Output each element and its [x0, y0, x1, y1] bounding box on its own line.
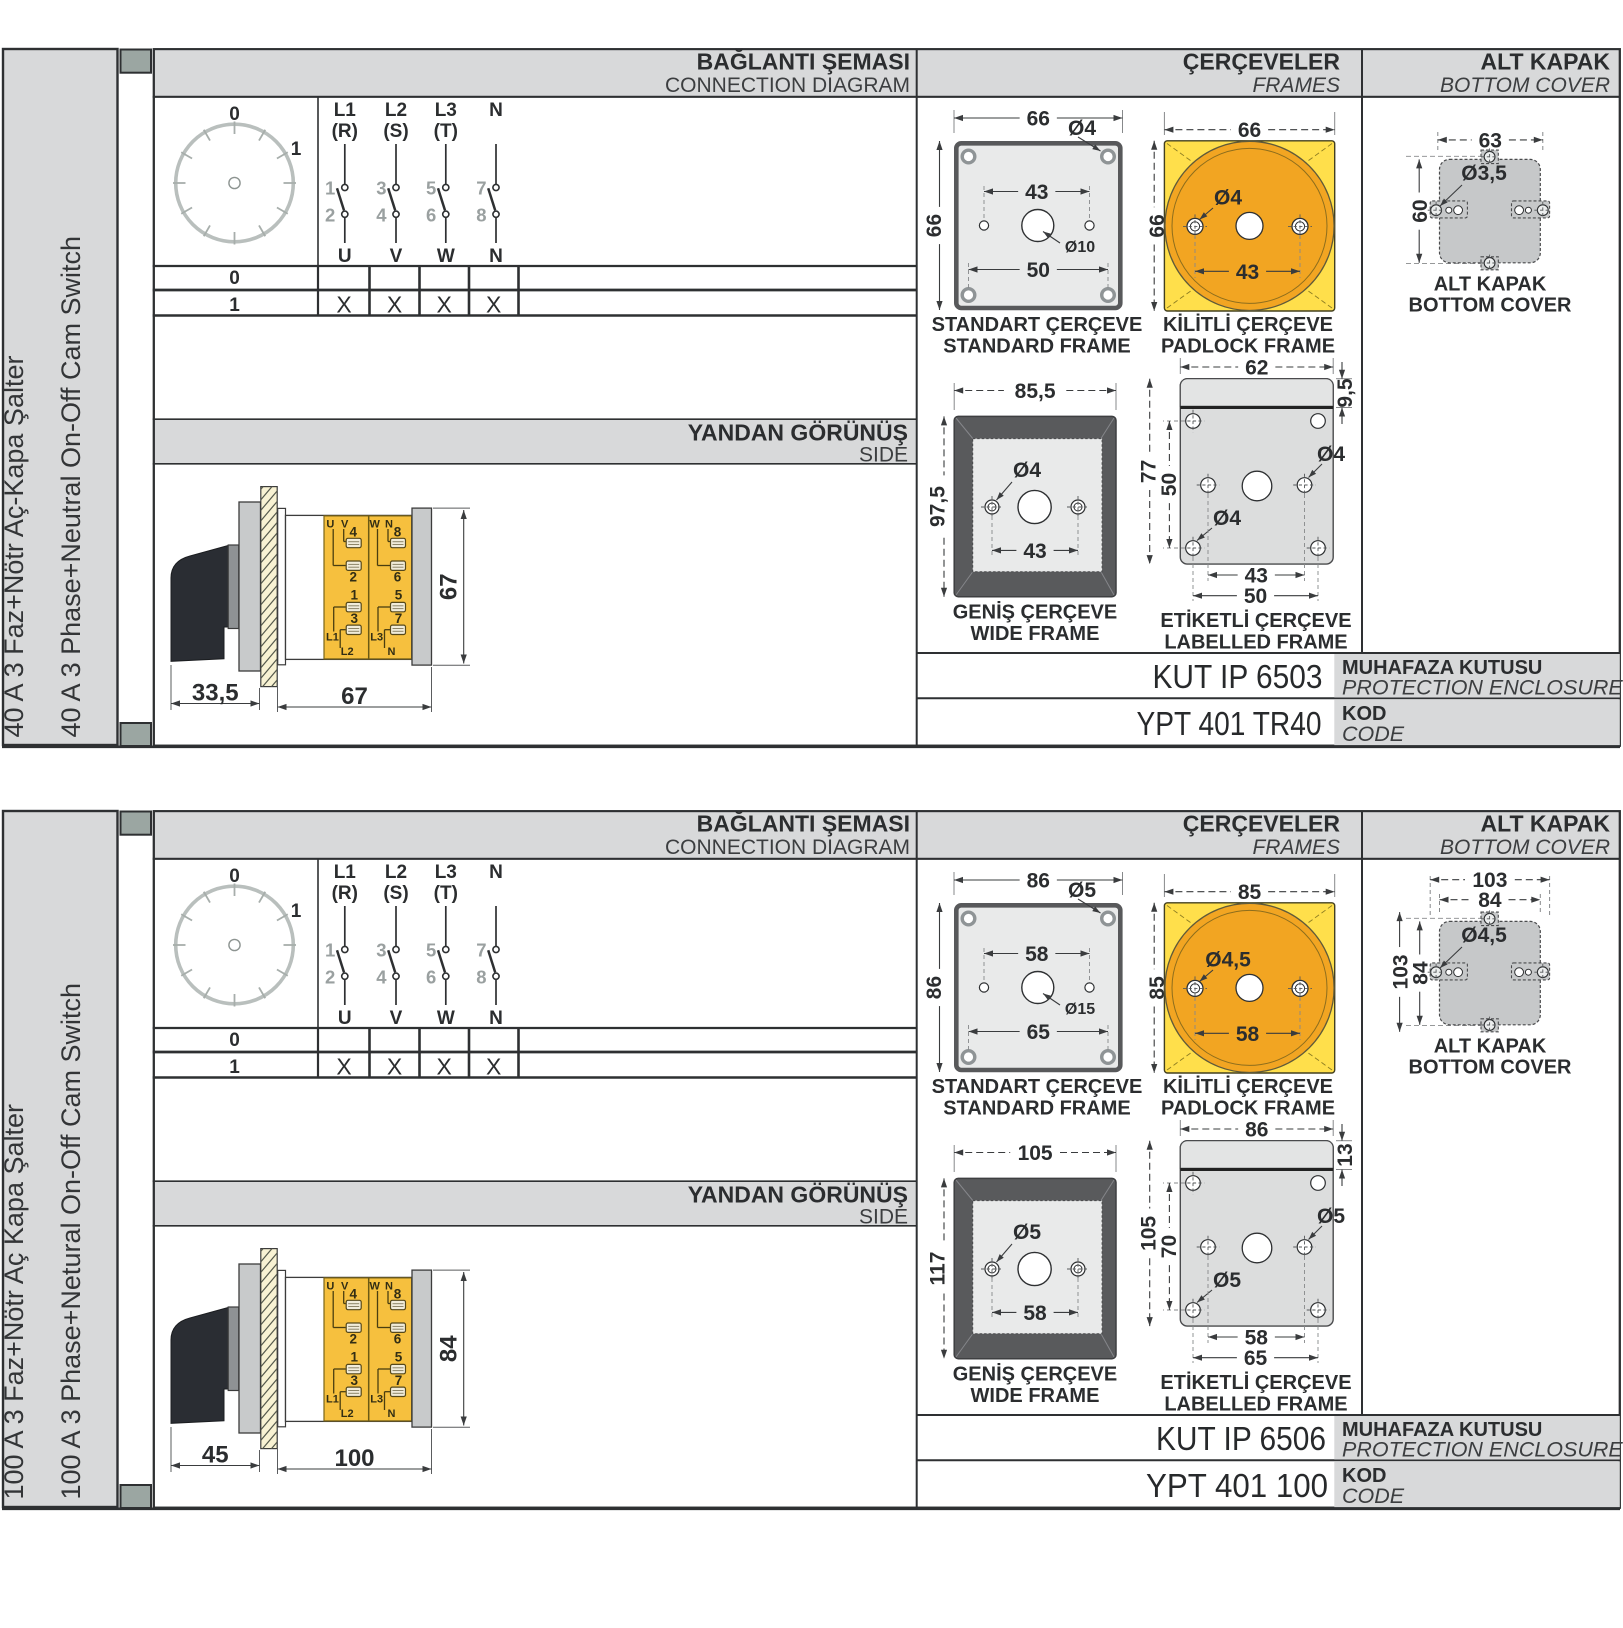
- svg-text:4: 4: [376, 967, 387, 988]
- svg-text:(R): (R): [332, 883, 358, 904]
- svg-text:(T): (T): [434, 121, 458, 142]
- svg-text:58: 58: [1025, 943, 1049, 966]
- svg-text:N: N: [489, 246, 503, 267]
- svg-text:2: 2: [349, 1332, 357, 1347]
- svg-text:STANDARD FRAME: STANDARD FRAME: [943, 1098, 1130, 1120]
- svg-text:45: 45: [202, 1441, 229, 1468]
- svg-text:0: 0: [229, 866, 240, 887]
- svg-text:58: 58: [1245, 1327, 1269, 1350]
- svg-text:W: W: [437, 246, 455, 267]
- svg-text:7: 7: [476, 178, 486, 199]
- svg-text:7: 7: [395, 1373, 403, 1388]
- svg-text:2: 2: [325, 205, 335, 226]
- svg-text:L3: L3: [435, 862, 457, 883]
- svg-text:1: 1: [291, 139, 302, 160]
- svg-text:66: 66: [1146, 214, 1169, 237]
- svg-text:L2: L2: [385, 862, 407, 883]
- svg-text:85: 85: [1238, 881, 1262, 904]
- svg-text:BOTTOM COVER: BOTTOM COVER: [1440, 836, 1610, 859]
- svg-text:KİLİTLİ ÇERÇEVE: KİLİTLİ ÇERÇEVE: [1163, 313, 1333, 336]
- svg-text:BOTTOM COVER: BOTTOM COVER: [1409, 295, 1573, 317]
- svg-text:85,5: 85,5: [1015, 380, 1056, 403]
- svg-text:X: X: [486, 292, 501, 318]
- svg-text:7: 7: [395, 611, 403, 626]
- svg-text:U: U: [338, 246, 352, 267]
- svg-text:GENİŞ ÇERÇEVE: GENİŞ ÇERÇEVE: [953, 1363, 1117, 1386]
- svg-text:V: V: [390, 246, 403, 267]
- svg-text:GENİŞ ÇERÇEVE: GENİŞ ÇERÇEVE: [953, 601, 1117, 624]
- svg-text:L2: L2: [385, 100, 407, 121]
- svg-text:50: 50: [1244, 585, 1267, 608]
- svg-text:W: W: [437, 1008, 455, 1029]
- svg-text:ÇERÇEVELER: ÇERÇEVELER: [1183, 811, 1341, 837]
- svg-text:KUT IP 6506: KUT IP 6506: [1156, 1420, 1326, 1457]
- svg-text:65: 65: [1244, 1347, 1268, 1370]
- svg-text:BAĞLANTI ŞEMASI: BAĞLANTI ŞEMASI: [697, 810, 910, 837]
- svg-text:58: 58: [1236, 1023, 1260, 1046]
- svg-text:ETİKETLİ ÇERÇEVE: ETİKETLİ ÇERÇEVE: [1160, 1371, 1351, 1394]
- svg-text:X: X: [437, 1054, 452, 1080]
- svg-text:43: 43: [1025, 181, 1048, 204]
- svg-text:U: U: [326, 519, 334, 531]
- svg-text:ALT KAPAK: ALT KAPAK: [1434, 274, 1547, 296]
- svg-text:BOTTOM COVER: BOTTOM COVER: [1409, 1057, 1573, 1079]
- svg-text:LABELLED FRAME: LABELLED FRAME: [1164, 1394, 1347, 1416]
- svg-text:100 A 3 Phase+Netural On-Off C: 100 A 3 Phase+Netural On-Off Cam Switch: [56, 983, 86, 1500]
- svg-text:ALT KAPAK: ALT KAPAK: [1481, 49, 1611, 75]
- svg-text:PADLOCK FRAME: PADLOCK FRAME: [1161, 1098, 1335, 1120]
- svg-text:6: 6: [426, 967, 436, 988]
- svg-text:ALT KAPAK: ALT KAPAK: [1434, 1036, 1547, 1058]
- svg-text:SIDE: SIDE: [859, 1206, 908, 1229]
- svg-text:33,5: 33,5: [192, 679, 239, 706]
- svg-text:1: 1: [325, 178, 335, 199]
- svg-text:CONNECTION DIAGRAM: CONNECTION DIAGRAM: [665, 836, 910, 859]
- svg-text:84: 84: [1410, 961, 1433, 985]
- svg-text:Ø5: Ø5: [1013, 1221, 1041, 1244]
- svg-text:L1: L1: [326, 1394, 339, 1406]
- svg-text:ALT KAPAK: ALT KAPAK: [1481, 811, 1611, 837]
- svg-text:WIDE FRAME: WIDE FRAME: [971, 1385, 1100, 1407]
- svg-text:3: 3: [350, 1373, 358, 1388]
- svg-text:YPT 401 100: YPT 401 100: [1146, 1467, 1328, 1504]
- svg-text:43: 43: [1023, 540, 1046, 563]
- svg-text:1: 1: [350, 1350, 358, 1365]
- svg-text:86: 86: [923, 976, 946, 999]
- svg-text:L1: L1: [326, 632, 339, 644]
- svg-text:SIDE: SIDE: [859, 444, 908, 467]
- svg-text:FRAMES: FRAMES: [1252, 74, 1340, 97]
- svg-text:2: 2: [349, 570, 357, 585]
- svg-text:YPT 401 TR40: YPT 401 TR40: [1137, 705, 1322, 742]
- svg-text:67: 67: [341, 683, 368, 710]
- svg-text:1: 1: [229, 1057, 240, 1078]
- svg-text:67: 67: [436, 573, 463, 600]
- svg-text:X: X: [387, 1054, 402, 1080]
- svg-text:CODE: CODE: [1342, 1484, 1405, 1508]
- svg-text:N: N: [489, 100, 503, 121]
- svg-text:8: 8: [394, 525, 402, 540]
- svg-text:Ø5: Ø5: [1317, 1205, 1345, 1228]
- svg-text:Ø5: Ø5: [1068, 879, 1096, 902]
- svg-text:Ø4,5: Ø4,5: [1205, 949, 1251, 972]
- svg-text:6: 6: [426, 205, 436, 226]
- svg-text:L3: L3: [370, 632, 383, 644]
- svg-text:PROTECTION ENCLOSURE: PROTECTION ENCLOSURE: [1342, 1438, 1623, 1462]
- svg-text:8: 8: [476, 967, 486, 988]
- svg-text:66: 66: [1238, 119, 1261, 142]
- svg-text:(R): (R): [332, 121, 358, 142]
- svg-text:N: N: [385, 519, 393, 531]
- svg-text:97,5: 97,5: [927, 486, 950, 527]
- svg-text:KUT IP 6503: KUT IP 6503: [1153, 658, 1323, 695]
- svg-text:L1: L1: [334, 862, 357, 883]
- svg-text:5: 5: [395, 588, 403, 603]
- svg-text:N: N: [388, 646, 396, 658]
- svg-text:0: 0: [229, 104, 240, 125]
- svg-text:86: 86: [1245, 1119, 1268, 1142]
- svg-text:0: 0: [229, 1030, 240, 1051]
- svg-text:L2: L2: [341, 1408, 354, 1420]
- svg-text:9,5: 9,5: [1334, 378, 1357, 408]
- svg-text:X: X: [336, 1054, 351, 1080]
- svg-text:U: U: [326, 1281, 334, 1293]
- svg-text:BOTTOM COVER: BOTTOM COVER: [1440, 74, 1610, 97]
- svg-text:(T): (T): [434, 883, 458, 904]
- svg-text:8: 8: [476, 205, 486, 226]
- svg-text:LABELLED FRAME: LABELLED FRAME: [1164, 632, 1347, 654]
- svg-text:117: 117: [927, 1252, 950, 1286]
- svg-text:40 A 3 Faz+Nötr Aç-Kapa Şalter: 40 A 3 Faz+Nötr Aç-Kapa Şalter: [0, 356, 29, 738]
- svg-text:V: V: [341, 1281, 349, 1293]
- svg-text:PADLOCK FRAME: PADLOCK FRAME: [1161, 336, 1335, 358]
- svg-text:0: 0: [229, 268, 240, 289]
- svg-text:N: N: [489, 862, 503, 883]
- svg-text:X: X: [486, 1054, 501, 1080]
- svg-text:(S): (S): [383, 121, 408, 142]
- svg-text:KİLİTLİ ÇERÇEVE: KİLİTLİ ÇERÇEVE: [1163, 1075, 1333, 1098]
- svg-text:66: 66: [923, 214, 946, 237]
- svg-text:CODE: CODE: [1342, 722, 1405, 746]
- svg-text:L2: L2: [341, 646, 354, 658]
- svg-text:L3: L3: [435, 100, 457, 121]
- svg-text:66: 66: [1027, 108, 1050, 131]
- svg-text:5: 5: [426, 178, 436, 199]
- svg-text:N: N: [388, 1408, 396, 1420]
- svg-text:STANDARD FRAME: STANDARD FRAME: [943, 336, 1130, 358]
- svg-text:63: 63: [1479, 129, 1502, 152]
- svg-text:N: N: [489, 1008, 503, 1029]
- svg-text:86: 86: [1027, 870, 1050, 893]
- svg-text:Ø4: Ø4: [1317, 443, 1345, 466]
- svg-text:85: 85: [1146, 976, 1169, 1000]
- svg-text:STANDART ÇERÇEVE: STANDART ÇERÇEVE: [932, 1076, 1143, 1098]
- svg-text:84: 84: [1478, 889, 1502, 912]
- svg-text:WIDE FRAME: WIDE FRAME: [971, 623, 1100, 645]
- svg-text:Ø5: Ø5: [1213, 1269, 1241, 1292]
- svg-text:8: 8: [394, 1287, 402, 1302]
- svg-text:U: U: [338, 1008, 352, 1029]
- svg-text:PROTECTION ENCLOSURE: PROTECTION ENCLOSURE: [1342, 676, 1623, 700]
- svg-text:100: 100: [334, 1445, 374, 1472]
- svg-text:1: 1: [350, 588, 358, 603]
- svg-text:W: W: [370, 519, 381, 531]
- svg-text:3: 3: [350, 611, 358, 626]
- svg-text:L1: L1: [334, 100, 357, 121]
- svg-text:84: 84: [436, 1335, 463, 1362]
- svg-text:Ø4,5: Ø4,5: [1461, 924, 1507, 947]
- svg-text:X: X: [336, 292, 351, 318]
- svg-text:70: 70: [1158, 1235, 1181, 1258]
- svg-text:Ø4: Ø4: [1213, 507, 1241, 530]
- svg-text:FRAMES: FRAMES: [1252, 836, 1340, 859]
- svg-text:4: 4: [376, 205, 387, 226]
- svg-text:W: W: [370, 1281, 381, 1293]
- svg-text:1: 1: [291, 901, 302, 922]
- svg-text:62: 62: [1245, 357, 1268, 380]
- svg-text:6: 6: [394, 570, 402, 585]
- svg-text:N: N: [385, 1281, 393, 1293]
- svg-text:YANDAN GÖRÜNÜŞ: YANDAN GÖRÜNÜŞ: [688, 420, 908, 446]
- svg-text:4: 4: [349, 525, 357, 540]
- svg-text:Ø10: Ø10: [1065, 239, 1095, 256]
- svg-text:3: 3: [376, 940, 386, 961]
- svg-text:YANDAN GÖRÜNÜŞ: YANDAN GÖRÜNÜŞ: [688, 1182, 908, 1208]
- svg-text:CONNECTION DIAGRAM: CONNECTION DIAGRAM: [665, 74, 910, 97]
- svg-text:2: 2: [325, 967, 335, 988]
- svg-text:43: 43: [1236, 261, 1259, 284]
- svg-text:65: 65: [1027, 1021, 1051, 1044]
- svg-text:Ø15: Ø15: [1065, 1001, 1095, 1018]
- svg-text:(S): (S): [383, 883, 408, 904]
- svg-text:1: 1: [229, 295, 240, 316]
- svg-text:1: 1: [325, 940, 335, 961]
- svg-text:105: 105: [1018, 1142, 1053, 1165]
- svg-text:STANDART ÇERÇEVE: STANDART ÇERÇEVE: [932, 314, 1143, 336]
- svg-text:40 A 3 Phase+Neutral On-Off Ca: 40 A 3 Phase+Neutral On-Off Cam Switch: [56, 236, 86, 738]
- svg-text:Ø3,5: Ø3,5: [1461, 162, 1507, 185]
- svg-text:V: V: [341, 519, 349, 531]
- svg-text:43: 43: [1245, 565, 1268, 588]
- svg-text:ETİKETLİ ÇERÇEVE: ETİKETLİ ÇERÇEVE: [1160, 609, 1351, 632]
- svg-text:Ø4: Ø4: [1068, 117, 1096, 140]
- svg-text:5: 5: [395, 1350, 403, 1365]
- svg-text:5: 5: [426, 940, 436, 961]
- svg-text:BAĞLANTI ŞEMASI: BAĞLANTI ŞEMASI: [697, 48, 910, 75]
- svg-text:100 A 3 Faz+Nötr Aç Kapa Şalte: 100 A 3 Faz+Nötr Aç Kapa Şalter: [0, 1104, 29, 1500]
- svg-text:L3: L3: [370, 1394, 383, 1406]
- svg-text:60: 60: [1409, 199, 1432, 222]
- svg-text:Ø4: Ø4: [1214, 187, 1242, 210]
- svg-text:7: 7: [476, 940, 486, 961]
- svg-text:Ø4: Ø4: [1013, 459, 1041, 482]
- svg-text:6: 6: [394, 1332, 402, 1347]
- svg-text:50: 50: [1027, 259, 1050, 282]
- svg-text:4: 4: [349, 1287, 357, 1302]
- svg-text:ÇERÇEVELER: ÇERÇEVELER: [1183, 49, 1341, 75]
- svg-text:3: 3: [376, 178, 386, 199]
- svg-text:X: X: [437, 292, 452, 318]
- svg-text:58: 58: [1023, 1302, 1047, 1325]
- svg-text:X: X: [387, 292, 402, 318]
- svg-text:V: V: [390, 1008, 403, 1029]
- svg-text:13: 13: [1334, 1143, 1357, 1166]
- svg-text:50: 50: [1158, 473, 1181, 496]
